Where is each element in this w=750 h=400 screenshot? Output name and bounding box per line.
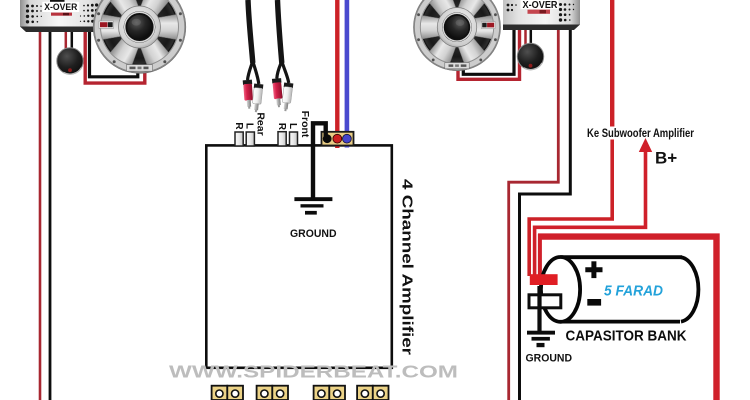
svg-text:L: L (287, 123, 298, 129)
svg-text:WWW.SPIDERBEAT.COM: WWW.SPIDERBEAT.COM (169, 362, 458, 382)
svg-text:R: R (276, 123, 287, 131)
svg-text:X-OVER: X-OVER (44, 2, 77, 13)
svg-text:X-OVER: X-OVER (523, 0, 558, 11)
svg-text:L: L (244, 123, 255, 129)
svg-text:Rear: Rear (255, 112, 267, 135)
svg-text:R: R (233, 122, 244, 130)
svg-text:CAPASITOR BANK: CAPASITOR BANK (566, 328, 687, 345)
svg-text:5 FARAD: 5 FARAD (604, 283, 663, 300)
svg-text:Front: Front (299, 111, 311, 138)
svg-text:B+: B+ (655, 149, 677, 168)
svg-text:GROUND: GROUND (526, 353, 573, 365)
svg-text:Ke Subwoofer Amplifier: Ke Subwoofer Amplifier (587, 128, 694, 140)
svg-text:4 Channel Amplifier: 4 Channel Amplifier (399, 179, 416, 355)
svg-text:GROUND: GROUND (290, 228, 337, 240)
